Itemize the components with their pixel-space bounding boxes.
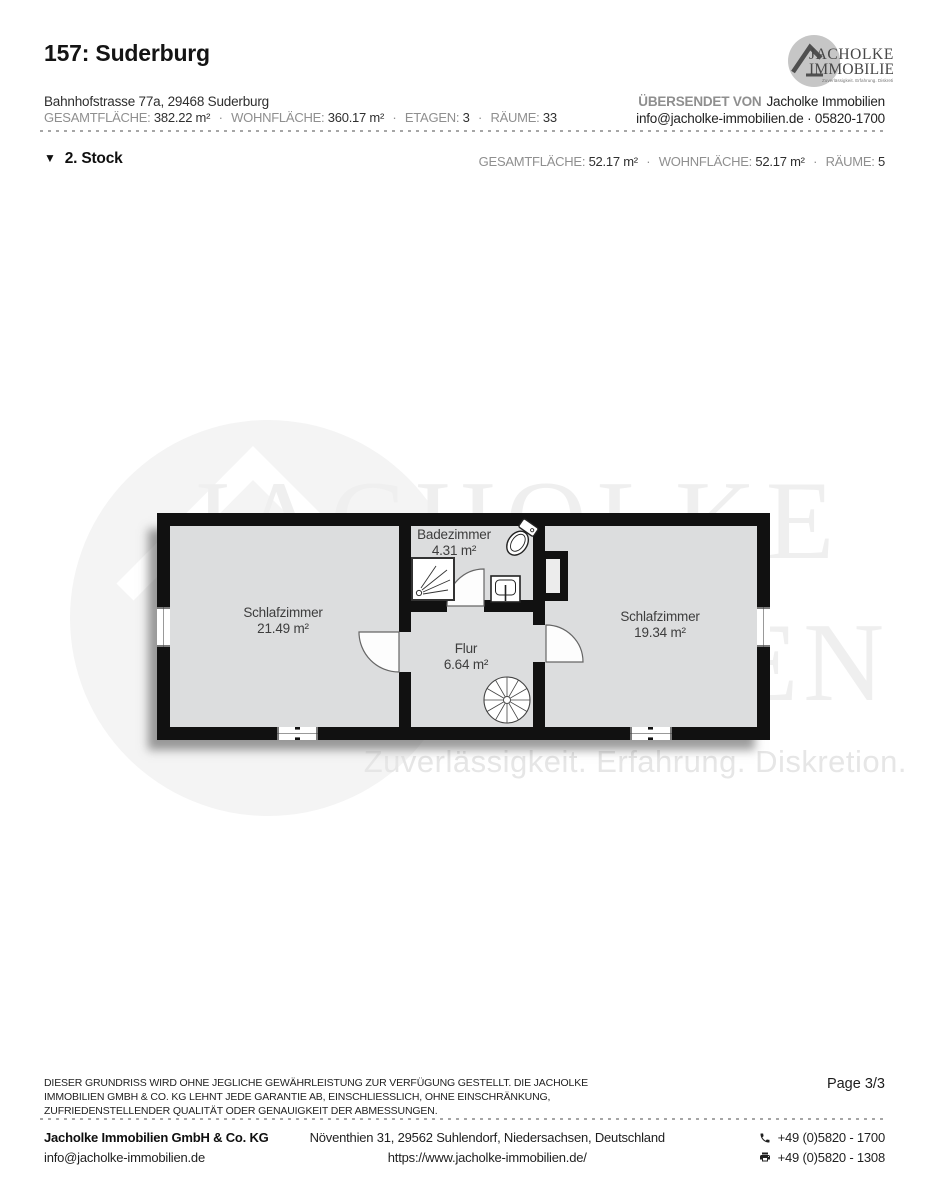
disclaimer-text: DIESER GRUNDRISS WIRD OHNE JEGLICHE GEWÄ… <box>44 1076 628 1118</box>
sink-icon <box>491 576 520 602</box>
separator-dot: · <box>646 154 650 169</box>
fax-icon <box>759 1151 771 1163</box>
property-address: Bahnhofstrasse 77a, 29468 Suderburg <box>44 94 269 109</box>
separator-dot: · <box>392 110 396 125</box>
room-label-bathroom: Badezimmer 4.31 m² <box>379 527 529 560</box>
stat-value: 5 <box>878 154 885 169</box>
floor-plan: Schlafzimmer 21.49 m² Badezimmer 4.31 m²… <box>157 513 770 740</box>
phone-icon <box>759 1132 771 1144</box>
page-number: Page 3/3 <box>827 1076 885 1092</box>
stat-value: 382.22 m² <box>154 110 210 125</box>
footer-fax: +49 (0)5820 - 1308 <box>778 1148 885 1168</box>
dashed-divider-bottom <box>40 1118 887 1120</box>
company-logo: JACHOLKE IMMOBILIEN Zuverlässigkeit. Erf… <box>773 28 893 94</box>
room-name: Badezimmer <box>379 527 529 543</box>
stat-label: WOHNFLÄCHE: <box>659 154 752 169</box>
stat-label: RÄUME: <box>490 110 539 125</box>
stat-value: 52.17 m² <box>755 154 804 169</box>
stat-label: GESAMTFLÄCHE: <box>44 110 151 125</box>
room-name: Schlafzimmer <box>585 609 735 625</box>
stat-label: WOHNFLÄCHE: <box>231 110 324 125</box>
stat-value: 33 <box>543 110 557 125</box>
window-right-wall <box>757 607 770 647</box>
room-label-hall: Flur 6.64 m² <box>391 641 541 674</box>
footer-company-name: Jacholke Immobilien GmbH & Co. KG <box>44 1128 294 1148</box>
stat-value: 360.17 m² <box>328 110 384 125</box>
footer-phone: +49 (0)5820 - 1700 <box>778 1128 885 1148</box>
footer-address-block: Növenthien 31, 29562 Suhlendorf, Nieders… <box>294 1128 680 1167</box>
footer-website: https://www.jacholke-immobilien.de/ <box>294 1148 680 1168</box>
room-name: Schlafzimmer <box>208 605 358 621</box>
room-label-bedroom-right: Schlafzimmer 19.34 m² <box>585 609 735 642</box>
room-area: 21.49 m² <box>208 621 358 637</box>
sent-by-block: ÜBERSENDET VONJacholke Immobilien info@j… <box>636 94 885 128</box>
page-title: 157: Suderburg <box>44 40 210 67</box>
room-name: Flur <box>391 641 541 657</box>
sent-by-label: ÜBERSENDET VON <box>638 94 761 109</box>
room-area: 4.31 m² <box>379 543 529 559</box>
room-area: 6.64 m² <box>391 657 541 673</box>
separator-dot: · <box>219 110 223 125</box>
dashed-divider-top <box>40 130 887 132</box>
stat-label: GESAMTFLÄCHE: <box>479 154 586 169</box>
window-bottom-left <box>277 727 318 740</box>
logo-word2: IMMOBILIEN <box>809 61 893 78</box>
sender-contact: info@jacholke-immobilien.de · 05820-1700 <box>636 111 885 128</box>
floor-section-title: 2. Stock <box>65 150 123 167</box>
footer-address: Növenthien 31, 29562 Suhlendorf, Nieders… <box>294 1128 680 1148</box>
footer-company-block: Jacholke Immobilien GmbH & Co. KG info@j… <box>44 1128 294 1167</box>
window-bottom-right <box>630 727 672 740</box>
watermark-tagline: Zuverlässigkeit. Erfahrung. Diskretion. <box>364 744 907 780</box>
floor-stats: GESAMTFLÄCHE: 52.17 m² · WOHNFLÄCHE: 52.… <box>479 154 885 169</box>
collapse-triangle-icon: ▼ <box>44 151 56 165</box>
separator-dot: · <box>478 110 482 125</box>
separator-dot: · <box>813 154 817 169</box>
floor-section-header: ▼2. Stock <box>44 150 123 168</box>
logo-tagline: Zuverlässigkeit. Erfahrung. Diskretion. <box>822 78 893 83</box>
stat-value: 52.17 m² <box>589 154 638 169</box>
property-stats: GESAMTFLÄCHE: 382.22 m² · WOHNFLÄCHE: 36… <box>44 110 557 125</box>
spiral-staircase-icon <box>484 677 530 723</box>
room-area: 19.34 m² <box>585 625 735 641</box>
floorplan-document-page: JACHOLKE IMMOBILIEN Zuverlässigkeit. Erf… <box>0 0 927 1200</box>
footer: Jacholke Immobilien GmbH & Co. KG info@j… <box>44 1128 885 1167</box>
sent-by-value: Jacholke Immobilien <box>766 94 885 109</box>
shower-icon <box>412 558 454 600</box>
duct-shaft <box>538 551 568 601</box>
stat-label: RÄUME: <box>826 154 875 169</box>
stat-label: ETAGEN: <box>405 110 459 125</box>
footer-email: info@jacholke-immobilien.de <box>44 1148 294 1168</box>
footer-contact-block: +49 (0)5820 - 1700 +49 (0)5820 - 1308 <box>680 1128 885 1167</box>
window-left-wall <box>157 607 170 647</box>
room-label-bedroom-left: Schlafzimmer 21.49 m² <box>208 605 358 638</box>
stat-value: 3 <box>463 110 470 125</box>
